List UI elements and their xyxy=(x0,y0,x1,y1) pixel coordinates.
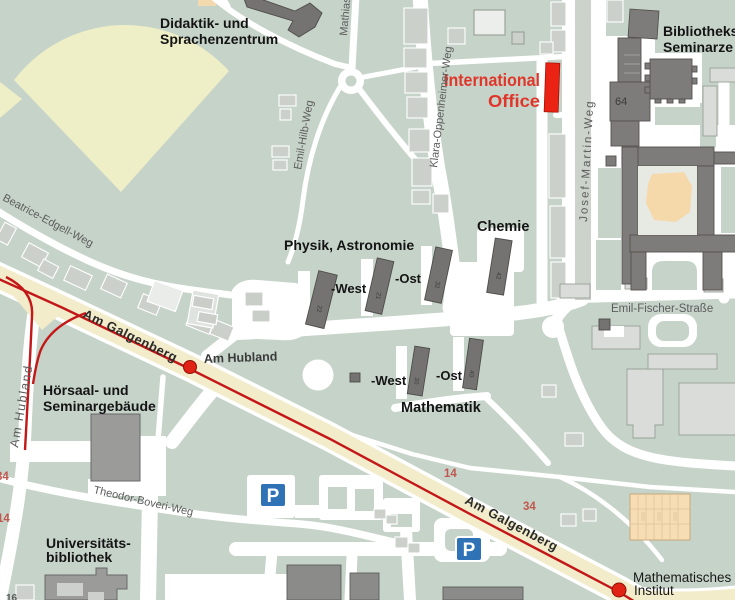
svg-text:-West: -West xyxy=(331,281,367,296)
svg-text:Seminargebäude: Seminargebäude xyxy=(43,398,156,414)
svg-text:Mathematik: Mathematik xyxy=(401,400,482,416)
svg-text:Seminarze: Seminarze xyxy=(663,39,733,55)
svg-text:Didaktik- und: Didaktik- und xyxy=(160,15,249,31)
svg-text:40: 40 xyxy=(467,370,475,378)
svg-text:-West: -West xyxy=(371,373,407,388)
svg-text:Institut: Institut xyxy=(634,583,674,598)
svg-text:Office: Office xyxy=(488,91,540,111)
svg-text:-Ost: -Ost xyxy=(436,368,463,383)
svg-text:Bibliotheks: Bibliotheks xyxy=(663,23,735,39)
svg-text:Chemie: Chemie xyxy=(477,219,529,235)
svg-text:Am Hubland: Am Hubland xyxy=(204,349,278,366)
svg-text:34: 34 xyxy=(0,471,9,483)
svg-text:14: 14 xyxy=(0,513,10,525)
svg-text:34: 34 xyxy=(523,501,536,513)
svg-text:-Ost: -Ost xyxy=(395,271,422,286)
svg-text:Physik, Astronomie: Physik, Astronomie xyxy=(284,237,414,253)
svg-text:64: 64 xyxy=(615,96,627,108)
svg-text:P: P xyxy=(463,540,476,561)
svg-text:Emil-Fischer-Straße: Emil-Fischer-Straße xyxy=(611,303,713,315)
svg-text:14: 14 xyxy=(444,468,457,480)
svg-text:42: 42 xyxy=(494,272,502,280)
svg-text:International: International xyxy=(444,70,540,90)
svg-text:P: P xyxy=(267,486,280,507)
svg-text:Sprachenzentrum: Sprachenzentrum xyxy=(160,31,278,47)
svg-text:Hörsaal- und: Hörsaal- und xyxy=(43,382,129,398)
svg-text:bibliothek: bibliothek xyxy=(46,549,112,565)
svg-text:30: 30 xyxy=(412,377,420,385)
svg-text:16: 16 xyxy=(6,593,18,600)
